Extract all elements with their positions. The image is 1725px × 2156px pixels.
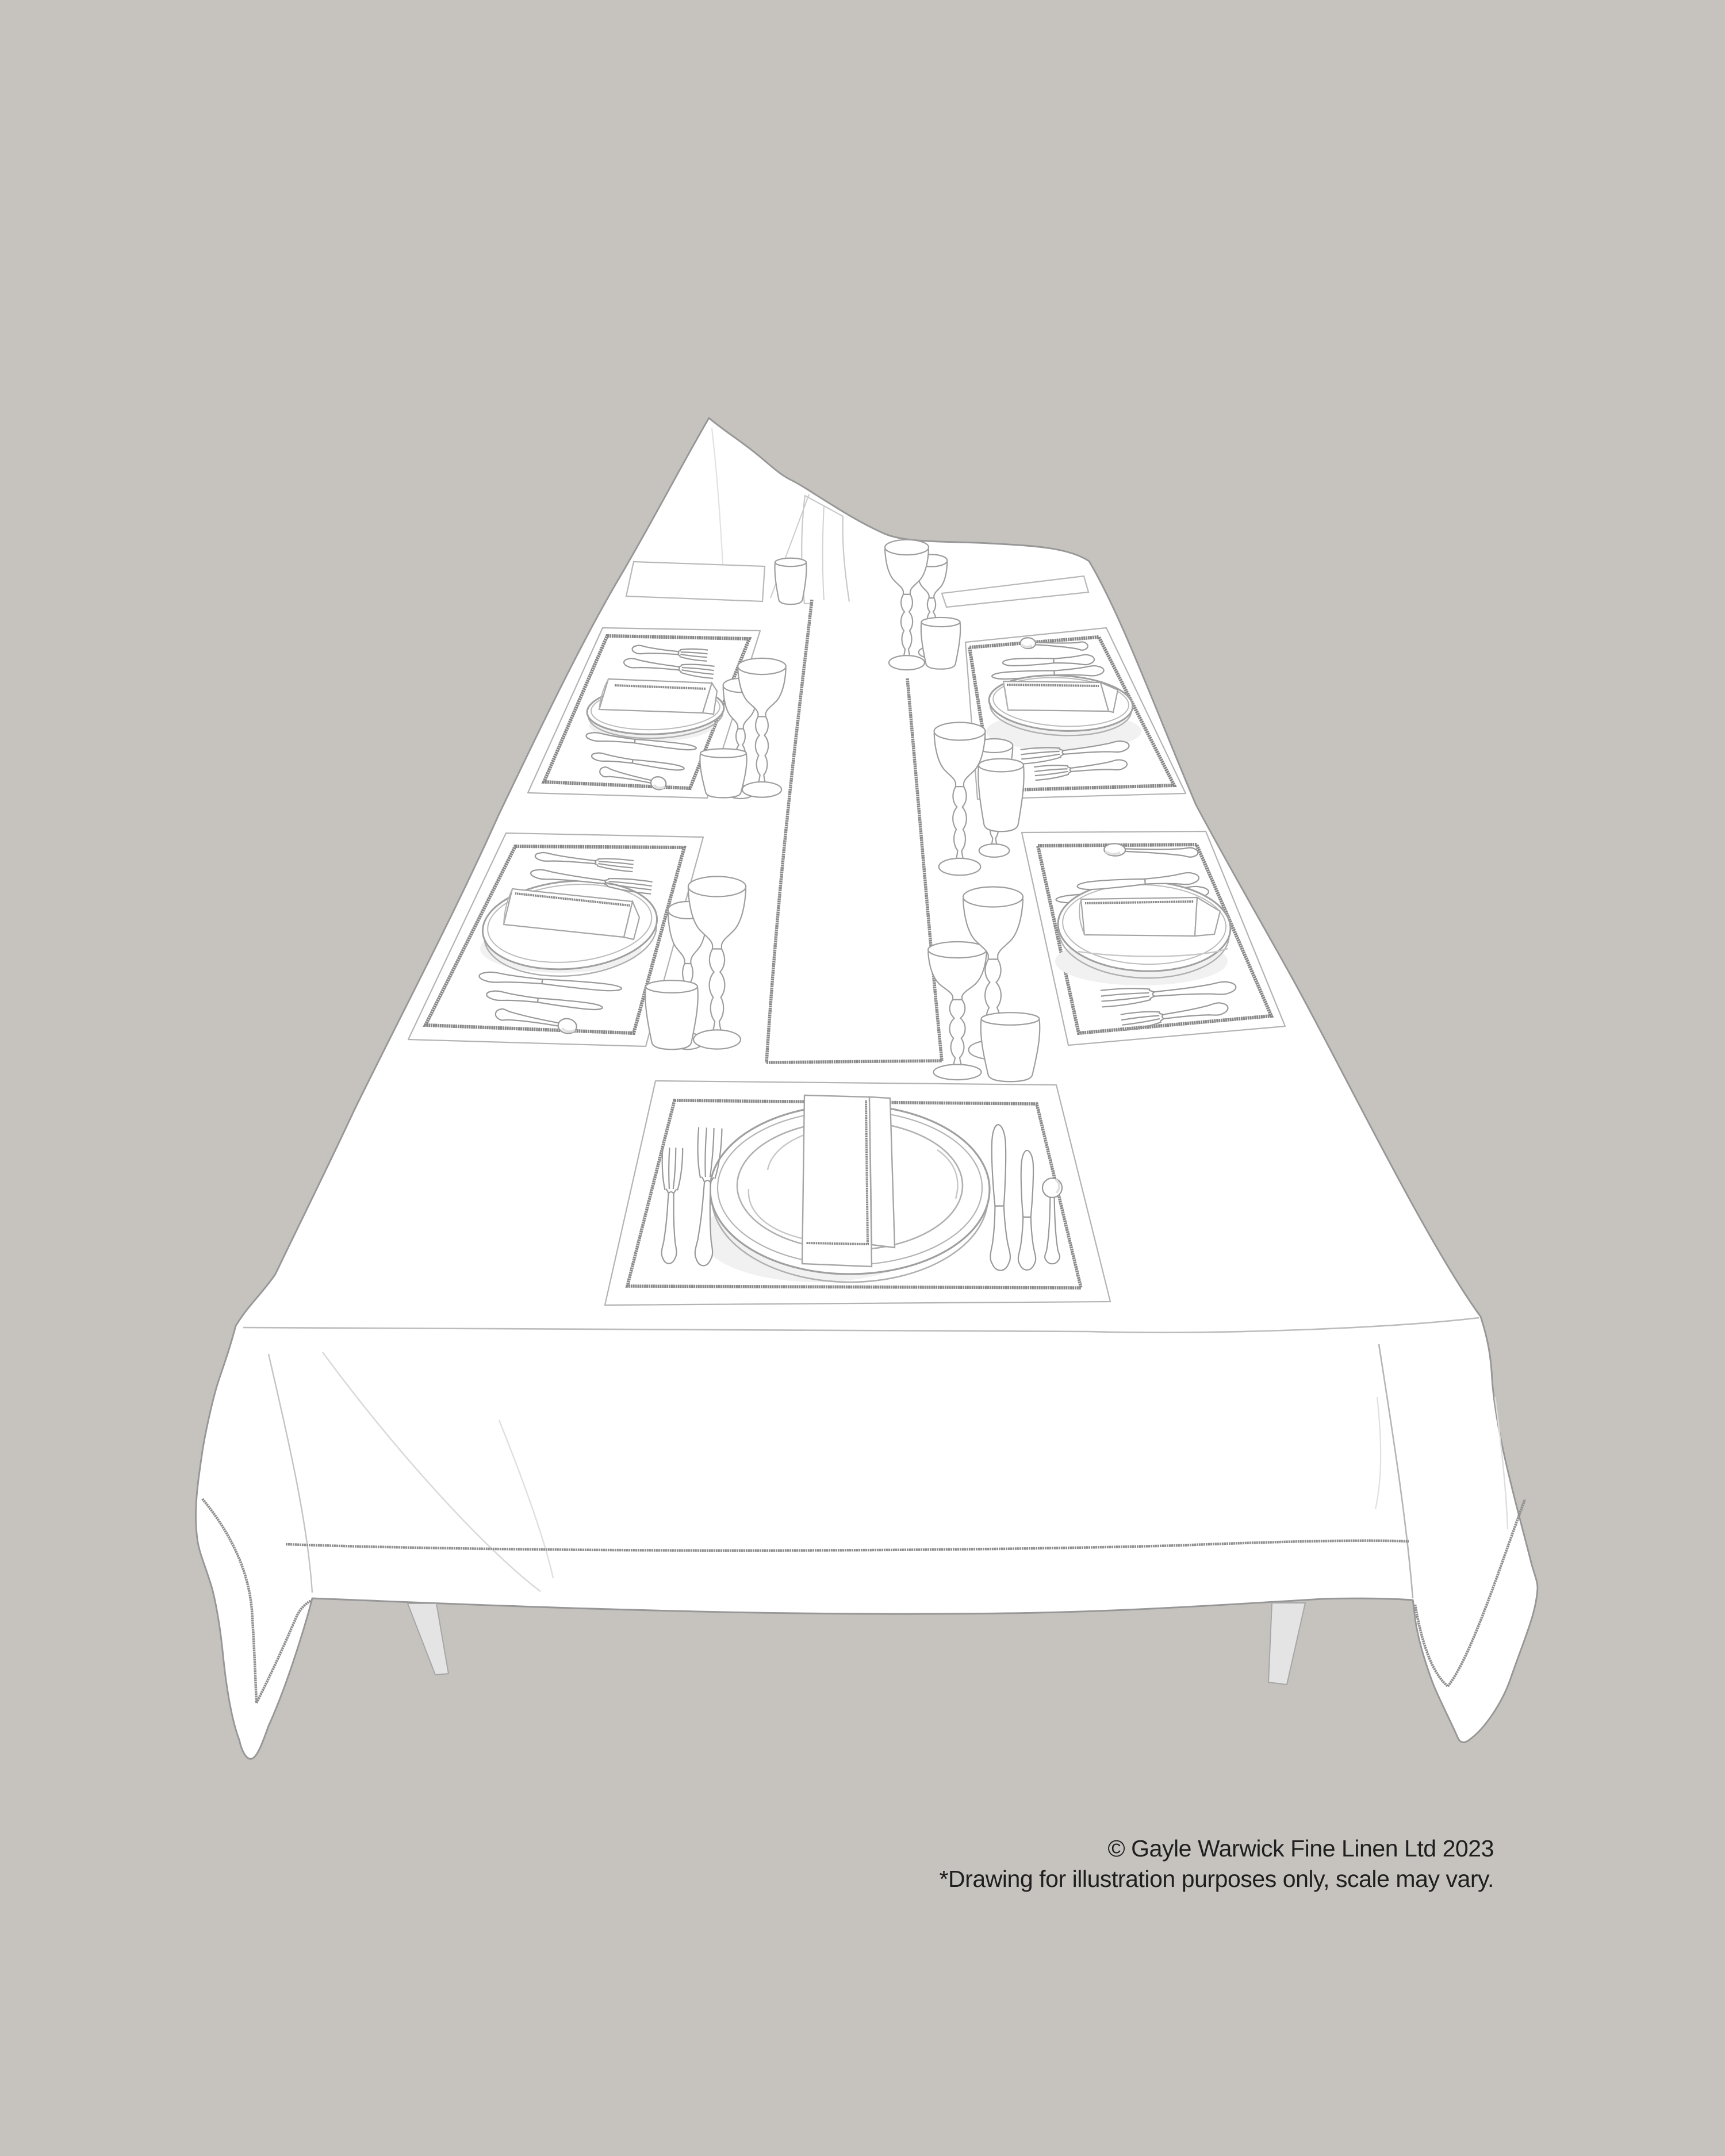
svg-text:© Gayle Warwick Fine Linen Ltd: © Gayle Warwick Fine Linen Ltd 2023 <box>1107 1835 1494 1862</box>
svg-text:*Drawing for illustration purp: *Drawing for illustration purposes only,… <box>939 1866 1494 1892</box>
